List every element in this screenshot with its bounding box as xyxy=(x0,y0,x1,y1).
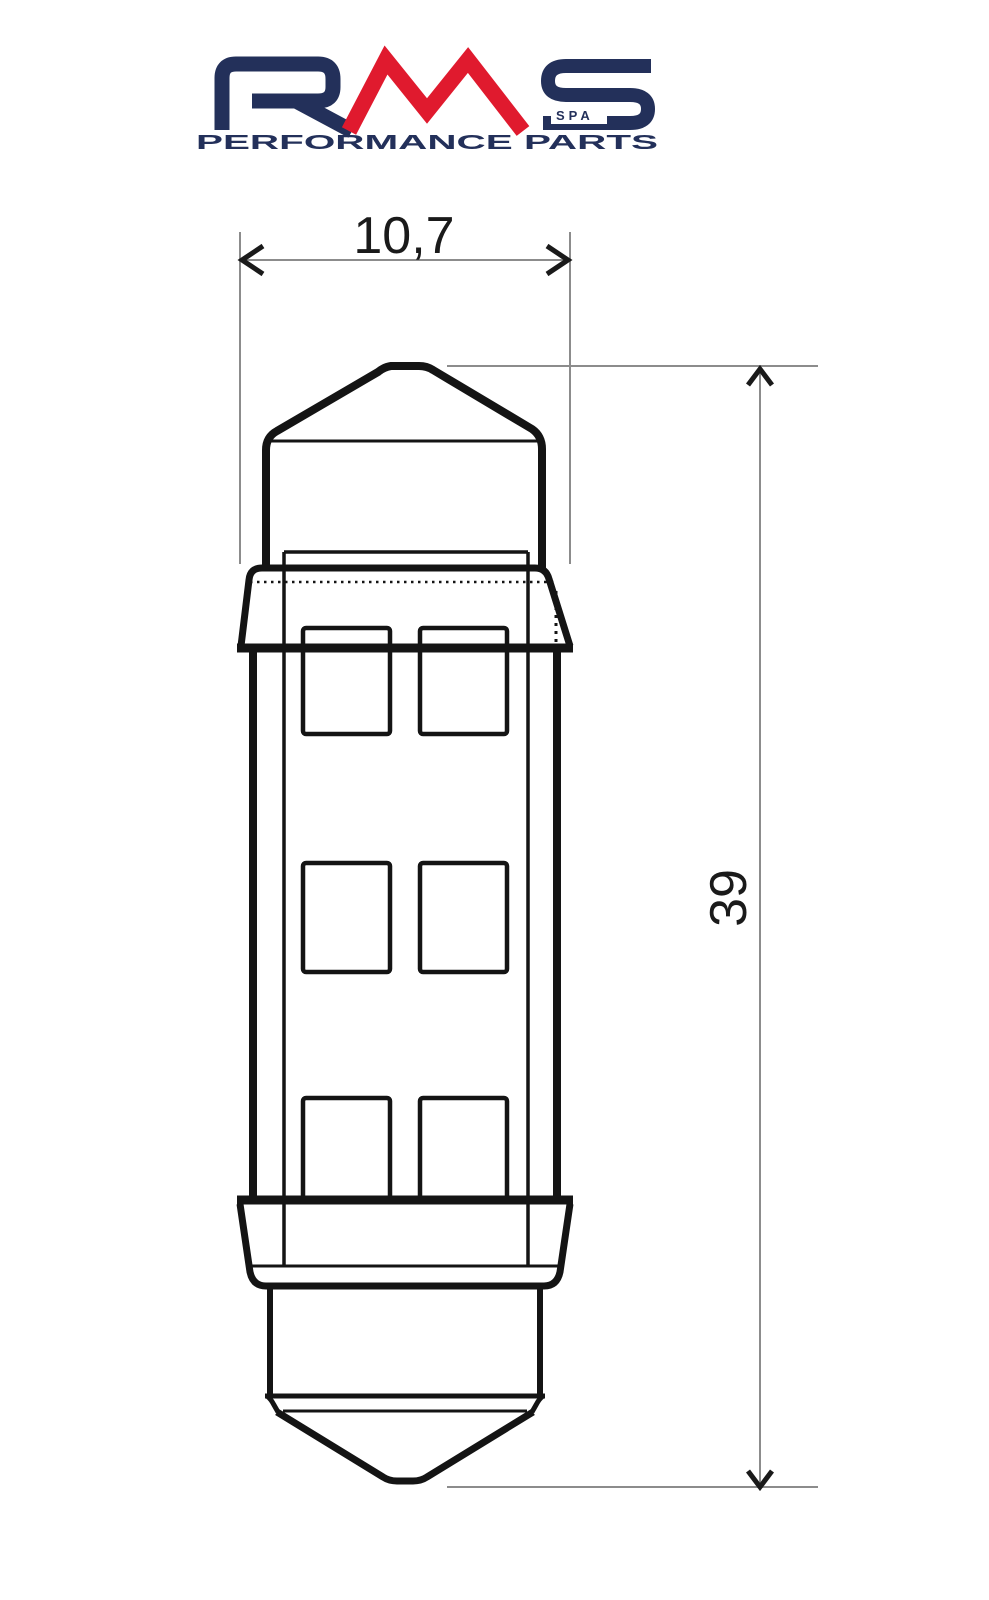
width-dimension-label: 10,7 xyxy=(353,207,454,265)
logo-letter-r xyxy=(222,64,352,131)
drawing-canvas: RMS SPA PERFORMANCE PARTS xyxy=(0,0,989,1600)
led-chip xyxy=(420,863,507,972)
led-chip xyxy=(420,1098,507,1200)
led-chip-grid xyxy=(303,628,507,1200)
logo-letter-m xyxy=(349,60,523,131)
bottom-cap-outline xyxy=(240,1204,570,1286)
logo-tagline: PERFORMANCE PARTS xyxy=(196,132,658,154)
logo-spa-label: SPA xyxy=(556,108,594,123)
bulb-dome-outline xyxy=(266,366,542,568)
height-dimension-label: 39 xyxy=(700,869,758,927)
led-chip xyxy=(303,1098,390,1200)
bulb-drawing xyxy=(237,366,573,1481)
logo: SPA PERFORMANCE PARTS xyxy=(196,60,658,154)
bulb-tip-cone xyxy=(277,1412,533,1481)
top-cap-outline xyxy=(241,568,570,646)
led-chip xyxy=(303,863,390,972)
technical-drawing-svg: RMS SPA PERFORMANCE PARTS xyxy=(0,0,989,1600)
